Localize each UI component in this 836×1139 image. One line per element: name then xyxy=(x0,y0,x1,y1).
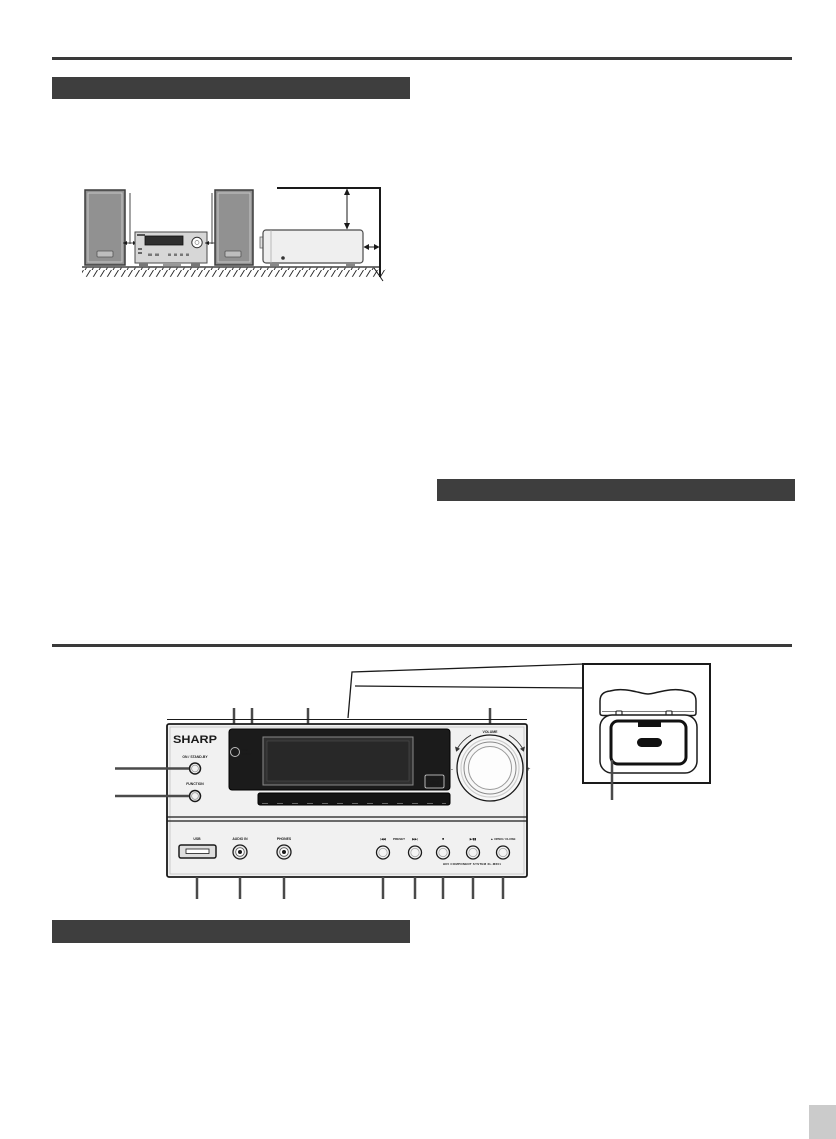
phones-label: PHONES xyxy=(277,837,292,841)
skip-back-label: |◀◀ xyxy=(380,837,386,841)
unit-side-view xyxy=(260,230,363,266)
indicator-label: TIMER xyxy=(242,750,249,752)
right-speaker xyxy=(215,190,253,265)
audio-in-label: AUDIO IN xyxy=(232,837,248,841)
page-number-tab xyxy=(809,1105,836,1139)
function-button xyxy=(190,791,201,802)
unit-foot xyxy=(346,263,355,266)
section-header-bar-right xyxy=(437,479,795,501)
bottom-callout-lines xyxy=(197,877,503,899)
model-label: HIFI COMPONENT SYSTEM XL-M601 xyxy=(443,862,501,866)
unit-foot xyxy=(163,263,181,266)
open-close-label: ▲ OPEN / CLOSE xyxy=(490,837,515,841)
front-panel-diagram: SHARP ON / STAND-BY FUNCTION TIMER STAND… xyxy=(110,655,730,905)
play-pause-label: ▶/▮▮ xyxy=(469,837,477,841)
indicator-label: STAND-BY xyxy=(242,753,253,756)
floor-hatch xyxy=(82,268,386,277)
mini-display xyxy=(145,236,183,245)
speaker-port xyxy=(225,251,241,257)
stop-button xyxy=(437,846,450,859)
dock-callout-wedge xyxy=(348,664,583,718)
volume-minus: - xyxy=(451,766,453,773)
open-close-button xyxy=(497,846,510,859)
phones-jack xyxy=(277,845,291,859)
skip-forward-button xyxy=(409,846,422,859)
mini-unit-front xyxy=(135,232,207,266)
skip-back-button xyxy=(377,846,390,859)
stop-label: ■ xyxy=(442,837,444,841)
left-speaker xyxy=(85,190,125,265)
horizontal-clearance-arrow xyxy=(364,244,380,250)
volume-label: VOLUME xyxy=(483,730,499,734)
skip-forward-label: ▶▶| xyxy=(411,837,418,841)
play-pause-button xyxy=(467,846,480,859)
volume-plus: + xyxy=(527,766,531,773)
preset-label: PRESET xyxy=(393,837,405,841)
svg-text:DIGITAL AUDIO: DIGITAL AUDIO xyxy=(428,785,441,788)
sharp-logo: SHARP xyxy=(173,734,217,746)
dock-latch xyxy=(638,722,661,727)
function-label: FUNCTION xyxy=(186,782,204,786)
unit-foot xyxy=(139,263,148,266)
unit-foot xyxy=(270,263,279,266)
dock-connector xyxy=(637,738,662,747)
audio-in-jack xyxy=(233,845,247,859)
usb-label: USB xyxy=(193,837,201,841)
section-header-bar-top xyxy=(52,77,410,99)
middle-rule xyxy=(52,644,792,647)
speaker-port xyxy=(97,251,113,257)
top-rule xyxy=(52,57,792,60)
section-header-bar-bottom xyxy=(52,920,410,943)
unit-foot xyxy=(191,263,200,266)
power-button xyxy=(190,763,201,774)
power-label: ON / STAND-BY xyxy=(182,755,208,759)
display-assembly: TIMER STAND-BY COMPACT disc DIGITAL AUDI… xyxy=(229,729,450,790)
dock-inset xyxy=(583,664,710,800)
placement-diagram xyxy=(70,180,390,286)
vertical-clearance-arrow xyxy=(344,189,350,230)
standby-indicator xyxy=(231,748,240,757)
manual-page: SHARP ON / STAND-BY FUNCTION TIMER STAND… xyxy=(0,0,836,1139)
usb-port xyxy=(179,845,216,858)
